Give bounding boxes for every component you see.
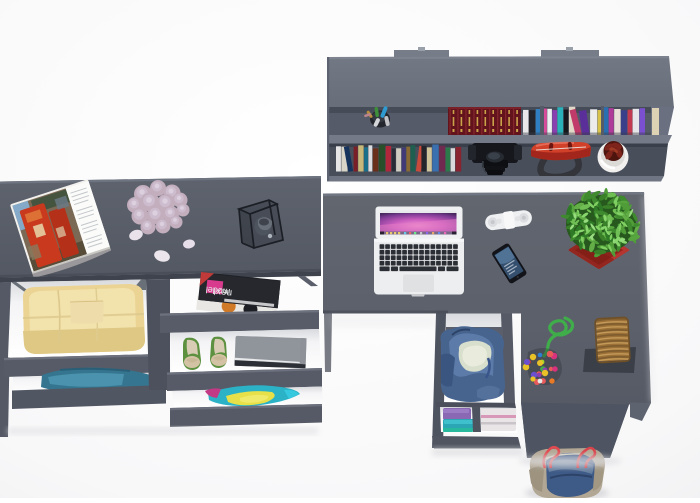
svg-text:next: next <box>212 285 232 298</box>
